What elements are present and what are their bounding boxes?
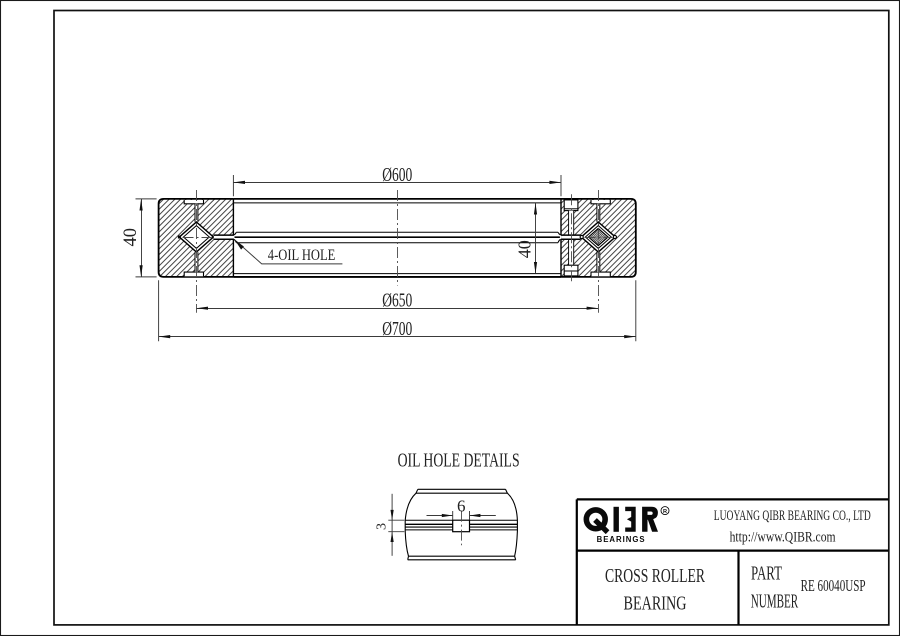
- svg-text:BEARINGS: BEARINGS: [597, 535, 646, 544]
- svg-text:40: 40: [514, 240, 534, 258]
- svg-text:40: 40: [121, 228, 141, 247]
- svg-text:PART: PART: [751, 563, 782, 585]
- svg-text:Ø700: Ø700: [382, 318, 412, 340]
- svg-text:Ø650: Ø650: [382, 290, 412, 312]
- svg-text:CROSS ROLLER: CROSS ROLLER: [605, 565, 705, 587]
- svg-text:6: 6: [457, 496, 466, 515]
- svg-text:LUOYANG QIBR BEARING CO., LTD: LUOYANG QIBR BEARING CO., LTD: [714, 508, 871, 524]
- svg-text:OIL HOLE DETAILS: OIL HOLE DETAILS: [398, 450, 520, 472]
- svg-text:R: R: [663, 509, 667, 515]
- svg-text:RE 60040USP: RE 60040USP: [801, 576, 866, 595]
- svg-text:NUMBER: NUMBER: [751, 590, 799, 612]
- svg-text:Ø600: Ø600: [382, 164, 412, 186]
- svg-text:http://www.QIBR.com: http://www.QIBR.com: [730, 530, 836, 546]
- svg-text:3: 3: [375, 523, 390, 530]
- svg-text:4-OIL HOLE: 4-OIL HOLE: [268, 247, 336, 264]
- svg-text:BEARING: BEARING: [624, 592, 687, 614]
